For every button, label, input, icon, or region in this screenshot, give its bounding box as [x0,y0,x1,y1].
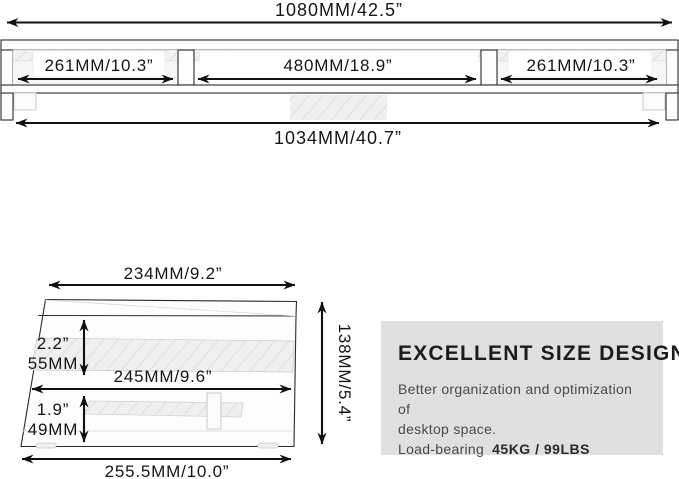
dim-label-right-section: 261MM/10.3” [527,56,636,75]
side-view-diagram: 234MM/9.2” 2.2” 55MM 245MM/9.6” 1.9” [21,264,354,479]
side-right-foot [258,443,278,448]
front-view-diagram: 1080MM/42.5” 261MM/10.3” 480MM/18.9” 261… [1,0,678,148]
front-center-right-leg [481,50,497,85]
dim-label-base-width: 1034MM/40.7” [274,128,402,148]
dim-label-left-section: 261MM/10.3” [45,56,154,75]
front-right-foot-step [643,93,665,110]
info-panel-description: Better organization and optimization of … [398,379,647,459]
info-panel-line1: Better organization and optimization of [398,381,632,417]
load-bearing-value: 45KG / 99LBS [492,441,590,457]
dim-label-middle-depth: 245MM/9.6” [114,367,213,386]
side-left-foot [36,443,56,448]
dim-label-top-depth: 234MM/9.2” [124,264,223,283]
front-lower-rail [1,85,678,93]
info-panel-title: EXCELLENT SIZE DESIGN [398,342,647,366]
dim-label-total-width: 1080MM/42.5” [275,0,403,20]
side-support-post [207,393,221,429]
info-panel: EXCELLENT SIZE DESIGN Better organizatio… [381,321,663,455]
dim-label-lower-clearance-mm: 49MM [28,420,78,439]
front-center-left-leg [178,50,194,85]
info-panel-line2: desktop space. [398,421,496,437]
dim-label-upper-clearance-mm: 55MM [28,354,78,373]
dim-label-lower-clearance-in: 1.9” [37,400,70,419]
front-left-foot-step [14,93,36,110]
side-top-slab-edge [38,316,296,317]
load-bearing-label: Load-bearing [398,441,484,457]
product-dimension-sheet: 1080MM/42.5” 261MM/10.3” 480MM/18.9” 261… [0,0,679,479]
dim-label-base-depth: 255.5MM/10.0” [105,462,230,479]
front-top-board [1,40,678,50]
dim-label-total-height: 138MM/5.4” [335,324,354,423]
front-left-leg [1,44,13,120]
dim-label-middle-section: 480MM/18.9” [284,56,393,75]
front-center-block [290,95,387,120]
dim-label-upper-clearance-in: 2.2” [37,334,70,353]
front-right-leg [666,44,678,120]
